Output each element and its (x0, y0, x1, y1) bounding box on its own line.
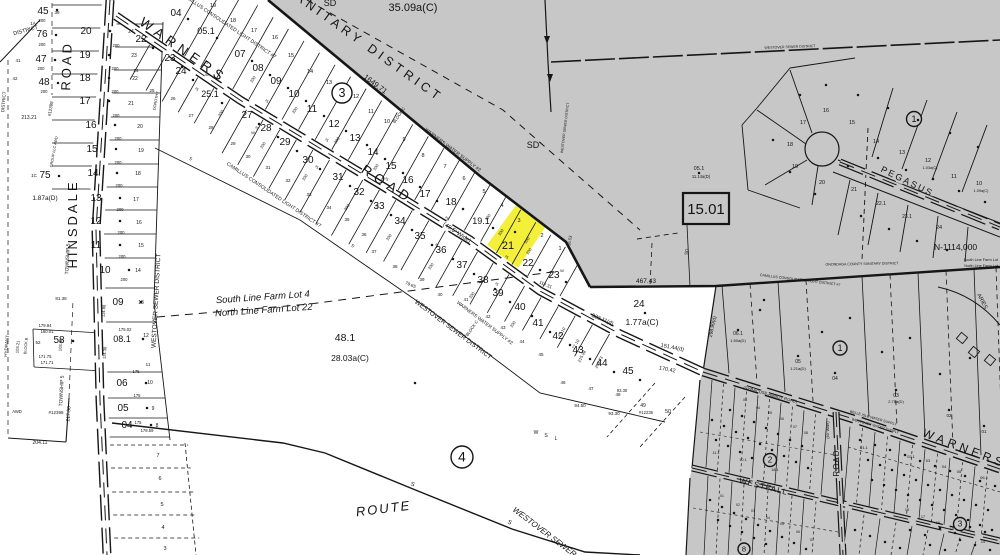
road-label-road-vertical: ROAD (832, 449, 841, 476)
dims_200_hinsdale-12: 200 (39, 42, 47, 47)
grayb_small-9: 01 (720, 494, 724, 498)
hinsdale_west_large-1: 76 (36, 29, 48, 40)
dims-28: 93.30 (608, 411, 620, 416)
svg-text:2: 2 (768, 456, 773, 465)
strip_ne_small-15: 4 (500, 203, 503, 209)
strip_sw_small-22: 46 (560, 380, 566, 385)
dims-16: AWD (12, 409, 22, 414)
hinsdale_east_small-15: 9 (152, 406, 155, 412)
strip_sw_large-21: 44 (596, 358, 608, 369)
grayb_east-7: 17 (921, 515, 925, 519)
survey-13: 28.03a(C) (331, 353, 369, 363)
strip_sw_small-6: 30 (245, 154, 251, 159)
survey-25: W (560, 268, 564, 273)
hinsdale_east_large-6: 14 (87, 168, 99, 179)
survey-9: 11.14a(D) (692, 174, 711, 179)
strip_sw_small-11: 35 (344, 217, 350, 222)
strip_ne_small-11: 8 (421, 153, 424, 159)
pegasus_lots-3: 17 (800, 120, 806, 126)
grayb_small-4: 07 (793, 425, 797, 429)
pegasus_lots-12: 22.1 (876, 201, 886, 207)
dims-17: 175.02 (119, 327, 132, 332)
strip_sw_small-14: 38 (392, 264, 398, 269)
block-number-3: 3 (954, 518, 967, 531)
hinsdale_west_small-3: 42 (12, 76, 18, 81)
dims-12: 204.11 (33, 440, 48, 446)
strip_sw_small-10: 34 (326, 205, 332, 210)
dims_200_sw-2: 200 (301, 172, 309, 181)
grayb_upper-5: 01 (981, 429, 987, 434)
hinsdale_east_large-8: 12 (90, 216, 102, 227)
hinsdale_east_small-9: 15 (138, 243, 144, 249)
strip_sw_large-2: 24 (175, 66, 187, 77)
group-llc-awd: GROUP LLC AWD (49, 136, 58, 168)
strip_ne_small-13: 6 (462, 176, 465, 182)
dims-33: 1.21a(D) (790, 366, 806, 371)
dims_200_hinsdale-5: 200 (115, 160, 123, 165)
strip_ne_large-11: 16 (402, 175, 414, 186)
hinsdale_west_small-1: 1A (30, 21, 36, 26)
hinsdale_east_large-2: 18 (79, 73, 91, 84)
block-number-3: 3 (332, 83, 352, 103)
hinsdale_east_small-10: 14 (135, 268, 141, 274)
strip_sw_large-18: 41 (532, 318, 544, 329)
dims_200_hinsdale-1: 200 (112, 66, 120, 71)
dims_200_sw-1: 200 (259, 140, 267, 149)
grayb_east-10: 14 (981, 540, 985, 544)
dims_200_hinsdale-9: 200 (119, 254, 127, 259)
survey-8: 05.1 (694, 166, 705, 172)
strip_sw_small-23: 47 (588, 386, 594, 391)
strip_ne_large-12: 17 (419, 189, 431, 200)
block-number-2: 2 (764, 454, 777, 467)
hinsdale_east_large-0: 20 (80, 26, 92, 37)
dims_200_ne-1: 200 (291, 105, 299, 114)
hinsdale_east_large-14: 05 (117, 403, 129, 414)
dims_75-2: 75 (324, 137, 330, 143)
hinsdale_west_small-4: 1C (31, 173, 38, 178)
area-35-09: 35.09a(C) (389, 2, 438, 14)
dims-7: 180.01 (41, 329, 54, 334)
strip_sw_small-9: 33 (306, 192, 312, 197)
dims_75-11: 75 (494, 281, 500, 287)
grayb_small-2: 05 (768, 411, 772, 415)
strip_sw_small-15: 39 (419, 277, 425, 282)
tax-map-page: 3411238WARNERSROAD(49.5' Wide)HINSDALERO… (0, 0, 1000, 555)
hinsdale_south-3: 4 (161, 525, 164, 531)
dims_200_sw-5: 200 (427, 261, 435, 270)
strip_sw_large-15: 38 (477, 275, 489, 286)
hinsdale_east_large-10: 10 (99, 265, 111, 276)
strip_sw_small-16: 40 (437, 292, 443, 297)
dims_200_hinsdale-2: 200 (112, 89, 120, 94)
strip_sw_small-12: 36 (361, 232, 367, 237)
grayb_small-12: 04 (766, 516, 770, 520)
parcel-24: 24 (633, 299, 645, 310)
strip_sw_small-1: 25 (149, 88, 155, 93)
hinsdale_east_small-8: 16 (136, 220, 142, 226)
hinsdale_west_large-2: 47 (35, 54, 47, 65)
hinsdale_east_small-16: 8 (156, 423, 159, 429)
sd-label-1: SD (527, 140, 540, 150)
survey-21: S (188, 156, 193, 162)
strip_ne_small-12: 7 (443, 164, 446, 170)
strip_sw_small-4: 28 (208, 125, 214, 130)
dims_200_ne-2: 200 (333, 135, 341, 144)
dims_200_sw-7: 200 (509, 319, 517, 328)
grayb_small-14: 06 (796, 530, 800, 534)
hinsdale_east_small-7: 17 (133, 197, 139, 203)
svg-text:4: 4 (458, 450, 466, 465)
pegasus_lots-7: 13 (899, 150, 905, 156)
grayb_east-0: 01.1 (860, 445, 869, 450)
pegasus_lots-6: 14 (873, 139, 879, 145)
dims-39: 175 (135, 420, 143, 425)
hinsdale_south-0: 7 (156, 453, 159, 459)
block-number-1: 1 (907, 112, 922, 127)
grayb_small-10: 02 (736, 503, 740, 507)
strip_sw_large-6: 29 (279, 137, 291, 148)
grayb_east-8: 16 (936, 521, 940, 525)
survey-16: W (534, 430, 539, 436)
strip_ne_large-3: 08 (252, 63, 264, 74)
strip_ne_small-6: 13 (326, 80, 332, 86)
grayb_small-1: 04 (756, 406, 760, 410)
road-label-hinsdale-road: ROAD (58, 41, 75, 91)
hinsdale_east_small-11: 13 (138, 300, 144, 306)
dims_200_hinsdale-11: 200 (39, 18, 47, 23)
hinsdale_east_large-11: 09 (112, 297, 124, 308)
dims-32: 1.50a(D) (730, 338, 746, 343)
hinsdale_east_large-5: 15 (86, 144, 98, 155)
svg-text:8: 8 (742, 545, 746, 554)
dims-5: 81.38 (55, 296, 67, 301)
strip_sw_small-20: 44 (519, 339, 525, 344)
road-label-route: ROUTE (355, 498, 412, 520)
grayb_small-5: 08 (804, 431, 808, 435)
strip_ne_small-18: 1 (558, 246, 561, 252)
hinsdale_west_large-0: 45 (37, 6, 49, 17)
strip_ne_large-7: 12 (328, 119, 340, 130)
dims-19: 114.38 (101, 346, 107, 360)
dims_200_hinsdale-7: 200 (117, 207, 125, 212)
dims_200_hinsdale-13: 200 (38, 66, 46, 71)
dims_200_hinsdale-10: 200 (121, 277, 129, 282)
strip_sw_small-0: 24 (133, 68, 139, 73)
grayb_east-3: 04 (942, 464, 947, 469)
grayb_east-2: 03 (926, 458, 931, 463)
hinsdale_east_small-3: 21 (128, 101, 134, 107)
grayb_small-0: 03 (743, 398, 747, 402)
hinsdale_east_small-14: 10 (147, 380, 153, 386)
parcel-48-1: 48.1 (335, 332, 356, 344)
sd-label-2: SD (324, 0, 337, 8)
strip_ne_large-13: 18 (445, 197, 457, 208)
township5-1: TOWNSHIP 5 (64, 243, 72, 274)
strip_sw_large-3: 25.1 (201, 89, 219, 99)
grayb_upper-4: 02 (946, 413, 952, 418)
highlight-parcel-number: 21 (502, 240, 514, 252)
hinsdale_south-4: 3 (163, 546, 166, 552)
grayb_upper-0: 06.1 (733, 331, 743, 337)
pegasus_lots-5: 15 (849, 120, 855, 126)
strip_sw_large-12: 35 (414, 231, 426, 242)
tax-map-canvas: 3411238WARNERSROAD(49.5' Wide)HINSDALERO… (0, 0, 1000, 555)
westover-sewer-route: WESTOVER SEWER (511, 505, 578, 555)
dims-14: #12398 (47, 100, 55, 116)
dims_200_sw-4: 200 (385, 232, 393, 241)
dims_75-1: 75 (264, 98, 270, 104)
strip_sw_large-19: 42 (552, 331, 564, 342)
grayb_east-5: 06.1 (980, 475, 989, 480)
strip_sw_large-14: 37 (456, 260, 468, 271)
strip_sw_large-9: 32 (353, 187, 365, 198)
dims-34: 2.75a(D) (888, 399, 904, 404)
survey-17: S (544, 433, 548, 439)
dims-23: 79.65 (404, 280, 417, 289)
strip_sw_large-5: 28 (260, 123, 272, 134)
westover-sewer-district-vertical: WESTOVER SEWER DISTRICT (151, 254, 163, 349)
strip_sw_small-13: 37 (371, 249, 377, 254)
svg-text:1: 1 (911, 114, 916, 124)
strip_sw_large-13: 36 (435, 245, 447, 256)
strip_sw_small-3: 27 (188, 113, 194, 118)
grayb_small-3: 06 (780, 417, 784, 421)
dims-6: 179.94 (39, 323, 52, 328)
dims-9: 171.71 (41, 360, 54, 365)
dims_200_hinsdale-6: 200 (116, 183, 124, 188)
hinsdale_east_small-1: 23 (131, 53, 137, 59)
strip_ne_large-2: 07 (234, 49, 246, 60)
grayb_small-11: 03 (751, 509, 755, 513)
strip_sw_large-4: 27 (241, 110, 253, 121)
hinsdale_west_large-3: 48 (38, 77, 50, 88)
strip_ne_small-4: 15 (288, 53, 294, 59)
strip_ne_small-10: 9 (402, 137, 405, 143)
strip_ne_small-2: 17 (251, 28, 257, 34)
svg-text:3: 3 (339, 86, 346, 100)
dims_200_sw-6: 200 (468, 290, 476, 299)
block-b: BLOCK B (23, 337, 28, 354)
grayb_upper-1: 05 (795, 359, 801, 365)
strip_ne_large-17: 23 (548, 270, 560, 281)
survey-22: S (350, 243, 355, 249)
strip_ne_small-8: 11 (368, 109, 374, 115)
dims_200_hinsdale-3: 200 (113, 113, 121, 118)
svg-text:1: 1 (838, 343, 843, 353)
hinsdale_west_small-0: 39 (54, 10, 60, 15)
strip_sw_large-10: 33 (373, 201, 385, 212)
strip_sw_small-19: 43 (500, 325, 506, 330)
strip_sw_small-17: 41 (463, 297, 469, 302)
dims-38: 175 (134, 393, 142, 398)
strip_sw_small-18: 42 (485, 314, 491, 319)
strip_sw_large-22: 45 (622, 366, 634, 377)
pegasus_lots-2: 18 (787, 142, 793, 148)
hinsdale_east_large-12: 08.1 (113, 334, 131, 344)
grayb_east-1: 02.1 (907, 454, 916, 459)
dorothy: DOROTHY (152, 91, 159, 111)
grayb_east-6: 18 (905, 508, 909, 512)
hydrant-label: HYDRANT (3, 335, 10, 357)
grayb_upper-3: 03 (893, 393, 899, 399)
dims-2: 170.42 (658, 365, 676, 374)
township5-2: TOWNSHIP 5 (58, 375, 66, 406)
strip_sw_large-1: 23 (164, 53, 176, 64)
westover-sewer-district-diag: WESTOVER SEWER DISTRICT (413, 299, 493, 361)
strip_sw_small-8: 32 (285, 178, 291, 183)
dims-35: 1.03a(C) (923, 166, 939, 170)
grayb_upper-2: 04 (832, 376, 838, 382)
south-line-farm-lot-small: South Line Farm Lot (964, 258, 999, 262)
survey-14: 467.43 (636, 278, 656, 285)
dims-18: 114.88 (100, 304, 106, 318)
grayb_small-8: 18.1 (771, 468, 778, 472)
strip_sw_large-16: 39 (492, 288, 504, 299)
block-c-2: BLOCK C (464, 319, 479, 337)
hinsdale_east_small-0: 24 (128, 29, 134, 35)
dims-15: #12398 (48, 410, 64, 415)
grid-n-1114000: N-1114,000 (934, 242, 977, 252)
survey-24: W (251, 130, 255, 135)
svg-text:3: 3 (958, 520, 963, 529)
strip_ne_small-0: 19 (210, 3, 216, 9)
strip_ne_small-5: 14 (307, 69, 313, 75)
road-width-60: (60' Wide) (826, 421, 830, 439)
hinsdale_east_large-4: 16 (85, 120, 97, 131)
strip_ne_large-10: 15 (385, 161, 397, 172)
parcel-15-01: 15.01 (687, 201, 725, 218)
grayb_east-9: 15 (950, 527, 954, 531)
strip_ne_small-16: 3 (517, 218, 520, 224)
strip_ne_large-8: 13 (349, 133, 361, 144)
survey-15: 1.87a(D) (32, 195, 57, 202)
block-number-8: 8 (738, 543, 750, 555)
hinsdale_east_large-3: 17 (79, 96, 91, 107)
hinsdale_east_large-7: 13 (90, 193, 102, 204)
hinsdale_east_large-13: 06 (116, 378, 128, 389)
strip_ne_large-6: 11 (307, 104, 318, 115)
strip_sw_small-26: 50 (665, 409, 671, 415)
grayb_small-7: 10.1 (739, 458, 746, 462)
strip_ne_small-7: 12 (353, 94, 359, 100)
hinsdale_east_small-5: 19 (138, 148, 144, 154)
strip_ne_small-3: 16 (272, 35, 278, 41)
hinsdale_west_small-2: 41 (15, 58, 21, 63)
grayb_small-13: 05 (780, 522, 784, 526)
strip_ne_small-17: 2 (540, 233, 543, 239)
strip_sw_large-8: 31 (332, 172, 344, 183)
hinsdale_east_large-1: 19 (79, 50, 91, 61)
grayb_small-15: 07 (810, 538, 814, 542)
strip_sw_large-20: 43 (572, 345, 584, 356)
hinsdale_south-1: 6 (158, 476, 161, 482)
strip_sw_large-7: 30 (302, 155, 314, 166)
dims-29: 94.50 (574, 403, 586, 408)
pegasus_lots-10: 10 (976, 181, 982, 187)
strip_ne_large-14: 19.1 (472, 216, 490, 226)
dims-37: 175 (133, 369, 141, 374)
grayb_east-4: 05 (957, 469, 962, 474)
pegasus_lots-0: 19 (792, 164, 798, 170)
strip_ne_small-14: 5 (482, 189, 485, 195)
strip_ne_large-0: 04 (170, 8, 182, 19)
pegasus_lots-9: 11 (951, 174, 957, 180)
block-number-1: 1 (833, 341, 847, 355)
strip_sw_small-24: 48 (615, 392, 621, 397)
strip_sw_small-21: 45 (538, 352, 544, 357)
strip_sw_large-17: 40 (514, 302, 526, 313)
survey-18: L (555, 436, 558, 442)
hinsdale_west_small-5: 52 (35, 340, 41, 345)
strip_ne_large-4: 09 (270, 76, 282, 87)
dims-20: 178.59 (141, 428, 154, 433)
strip_sw_small-2: 26 (170, 96, 176, 101)
dims-36: 1.09a(C) (974, 189, 990, 193)
district-leftedge: DISTRICT (0, 91, 7, 112)
survey-11: 1.77a(C) (625, 317, 658, 327)
dims_200_hinsdale-0: 200 (113, 43, 121, 48)
strip_ne_small-1: 18 (230, 18, 236, 24)
pegasus_lots-1: 20 (819, 180, 825, 186)
pegasus_lots-13: 23.1 (902, 214, 912, 220)
dims_200_hinsdale-8: 200 (118, 230, 126, 235)
dims-8: 171.75 (39, 354, 52, 359)
pegasus_lots-11: 21 (851, 187, 857, 193)
dims_75-6: 75 (194, 86, 200, 92)
strip_ne_large-5: 10 (288, 89, 300, 100)
strip_ne_large-1: 05.1 (197, 26, 215, 36)
dims_200_hinsdale-4: 200 (115, 136, 123, 141)
strip_ne_large-9: 14 (367, 147, 379, 158)
hinsdale_west_large-5: 58 (53, 335, 65, 346)
north-line-farm-lot-small: North Line Farm Lot (964, 264, 999, 268)
dims_200_ne-0: 200 (249, 74, 257, 83)
hinsdale_east_small-4: 20 (137, 124, 143, 130)
strip_sw_large-0: 22 (135, 34, 147, 45)
hinsdale_east_small-12: 12 (143, 333, 149, 339)
pegasus_lots-14: 24 (936, 225, 942, 231)
pegasus_lots-8: 12 (925, 158, 931, 164)
hinsdale_east_small-2: 22 (132, 76, 138, 82)
survey-20: S (506, 520, 512, 527)
dims_75-8: 75 (314, 164, 320, 170)
hinsdale_west_large-4: 75 (39, 170, 51, 181)
hinsdale_east_large-9: 11 (91, 240, 102, 251)
strip_sw_large-11: 34 (394, 216, 406, 227)
dims-31: #12235 (639, 410, 654, 415)
strip_ne_small-9: 10 (384, 119, 390, 125)
hinsdale_east_large-15: 04 (121, 420, 133, 431)
strip_sw_small-25: 49 (640, 403, 646, 409)
pegasus_lots-4: 16 (823, 108, 829, 114)
dims-4: 213.21 (21, 115, 37, 121)
survey-23: W (205, 72, 209, 77)
block-number-4: 4 (451, 446, 473, 468)
grayb_small-6: 11.1 (712, 451, 719, 455)
dims-13: 217.30 (65, 406, 72, 422)
hinsdale_east_small-13: 11 (146, 362, 151, 367)
hinsdale_south-2: 5 (160, 502, 163, 508)
strip_sw_small-7: 31 (265, 165, 271, 170)
strip_sw_small-5: 29 (230, 141, 236, 146)
hinsdale_east_small-6: 18 (135, 171, 141, 177)
dims-11: 103.21 (14, 340, 20, 354)
dims_200_hinsdale-14: 200 (41, 89, 49, 94)
strip_ne_large-16: 22 (522, 258, 534, 269)
